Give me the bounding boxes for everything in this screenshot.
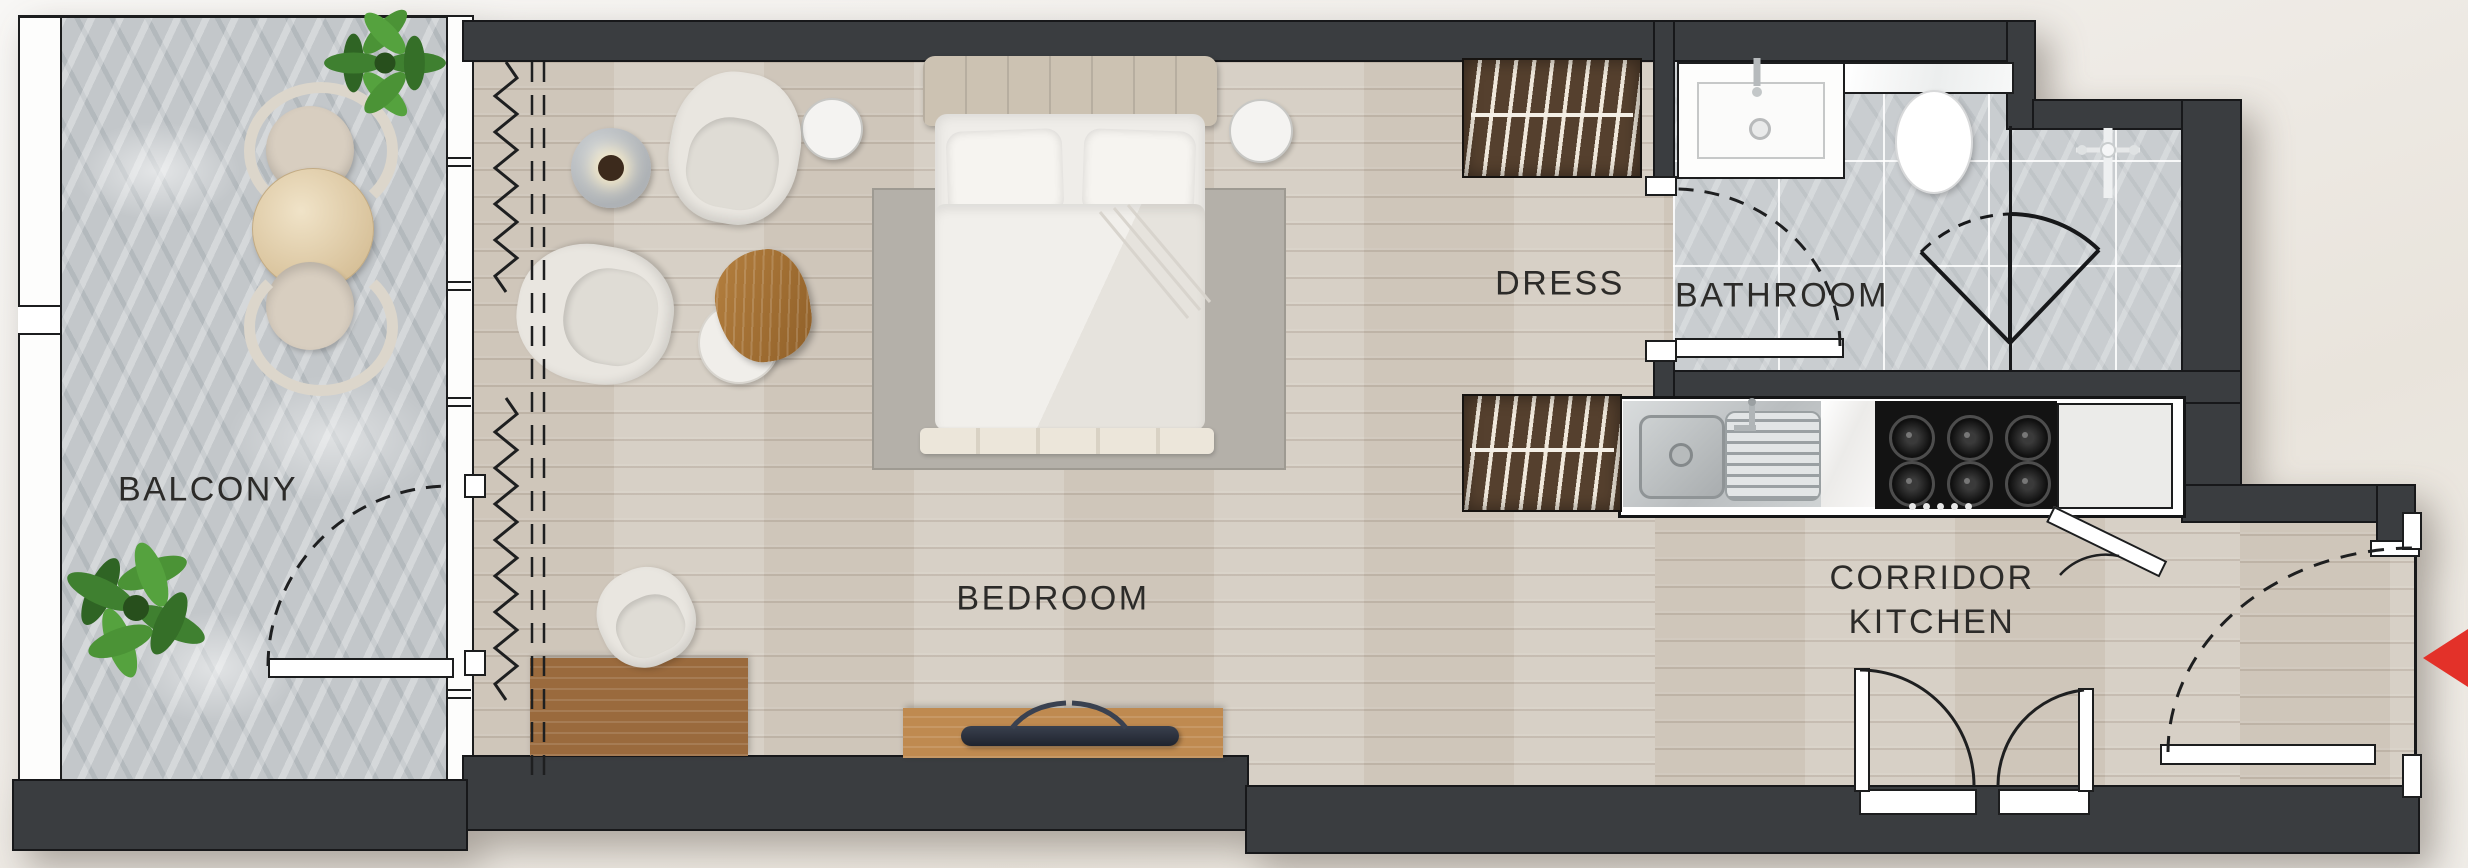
shower-mixer-icon <box>2077 145 2087 155</box>
floorplan: BALCONY BEDROOM DRESS BATHROOM CORRIDOR … <box>0 0 2468 868</box>
curtain-icon <box>495 398 517 700</box>
shower-door-leg <box>1921 252 2010 343</box>
shower-door-arc-dashed <box>1921 214 2010 252</box>
plant-icon <box>324 4 446 123</box>
corridor-door-swing-arc <box>1998 690 2084 786</box>
room-label-bedroom: BEDROOM <box>956 580 1149 619</box>
bathroom-door-swing-arc <box>1674 189 1840 346</box>
kitchen-door-swing-arc <box>2060 555 2119 575</box>
plan-linework <box>0 0 2468 868</box>
room-label-kitchen: KITCHEN <box>1849 603 2016 641</box>
shower-door-leg <box>2010 250 2099 343</box>
duvet-fold <box>1100 212 1188 318</box>
entry-arrow-icon <box>2412 624 2468 694</box>
plant-icon <box>37 509 236 706</box>
floorplan-canvas: BALCONY BEDROOM DRESS BATHROOM CORRIDOR … <box>0 0 2468 868</box>
vanity-faucet-icon <box>1752 87 1762 97</box>
duvet-fold <box>1114 208 1200 310</box>
room-label-bathroom: BATHROOM <box>1675 277 1889 316</box>
shower-door-arc <box>2010 214 2099 250</box>
corridor-door-swing-arc <box>1860 670 1974 786</box>
room-label-corridor-kitchen: CORRIDOR KITCHEN <box>1829 556 2034 644</box>
room-label-corridor: CORRIDOR <box>1829 559 2034 597</box>
balcony-door-swing-arc <box>268 486 450 666</box>
duvet-fold <box>1128 205 1210 302</box>
curtain-icon <box>495 62 517 292</box>
kitchen-faucet-icon <box>1748 398 1756 406</box>
shower-mixer-icon <box>2101 143 2115 157</box>
entry-door-swing-arc <box>2168 548 2414 752</box>
tv-stand-arm <box>1012 703 1066 728</box>
shower-mixer-icon <box>2129 145 2139 155</box>
tv-stand-arm <box>1072 703 1126 728</box>
room-label-dress: DRESS <box>1495 265 1625 304</box>
room-label-balcony: BALCONY <box>118 471 298 510</box>
